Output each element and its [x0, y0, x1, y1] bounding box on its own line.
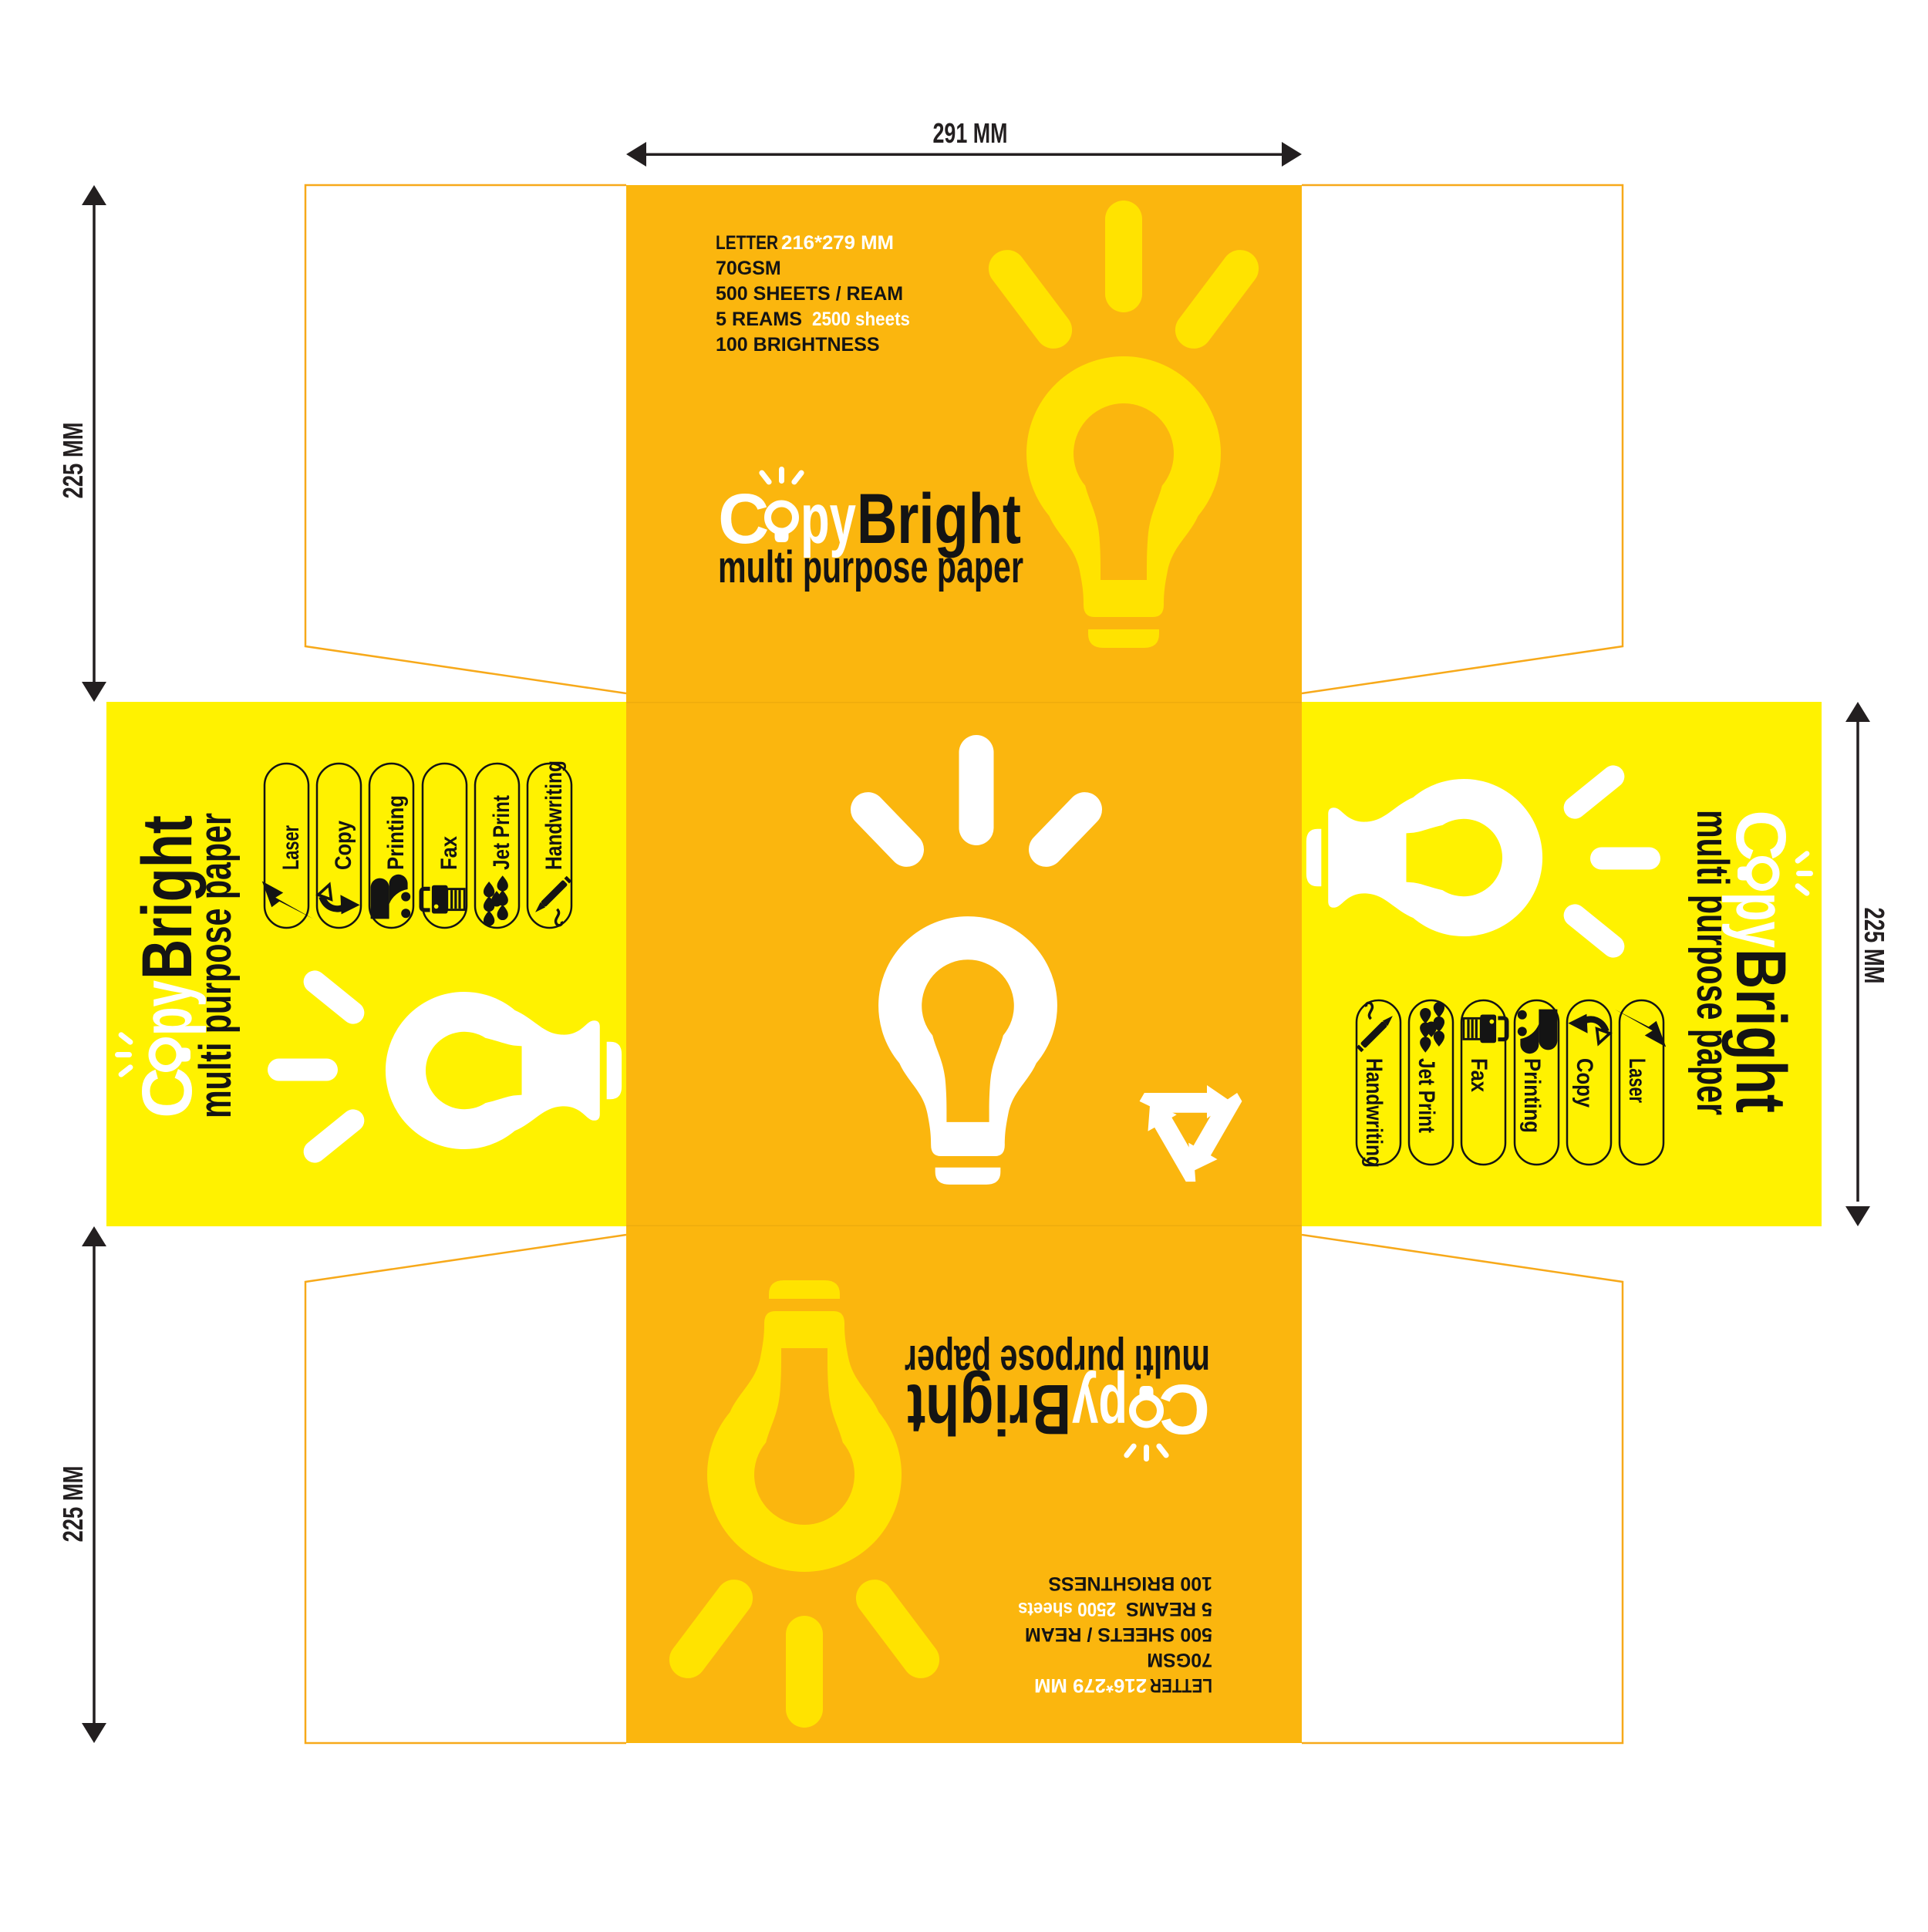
svg-text:225 MM: 225 MM: [57, 423, 89, 499]
svg-text:100 BRIGHTNESS: 100 BRIGHTNESS: [716, 334, 880, 356]
svg-text:Copy: Copy: [331, 821, 356, 870]
svg-text:Laser: Laser: [278, 825, 304, 870]
svg-text:500 SHEETS / REAM: 500 SHEETS / REAM: [716, 283, 903, 305]
svg-text:2500 sheets: 2500 sheets: [812, 309, 910, 330]
svg-text:Printing: Printing: [383, 795, 409, 870]
svg-text:225 MM: 225 MM: [1859, 908, 1890, 984]
svg-text:70GSM: 70GSM: [716, 258, 781, 279]
svg-text:Fax: Fax: [436, 836, 462, 870]
svg-text:291 MM: 291 MM: [933, 117, 1008, 149]
svg-text:216*279 MM: 216*279 MM: [781, 232, 894, 254]
svg-text:Jet Print: Jet Print: [489, 795, 514, 870]
svg-text:LETTER: LETTER: [716, 232, 778, 254]
svg-text:Handwriting: Handwriting: [541, 760, 567, 870]
svg-text:225 MM: 225 MM: [57, 1466, 89, 1543]
svg-text:5 REAMS: 5 REAMS: [716, 309, 802, 330]
